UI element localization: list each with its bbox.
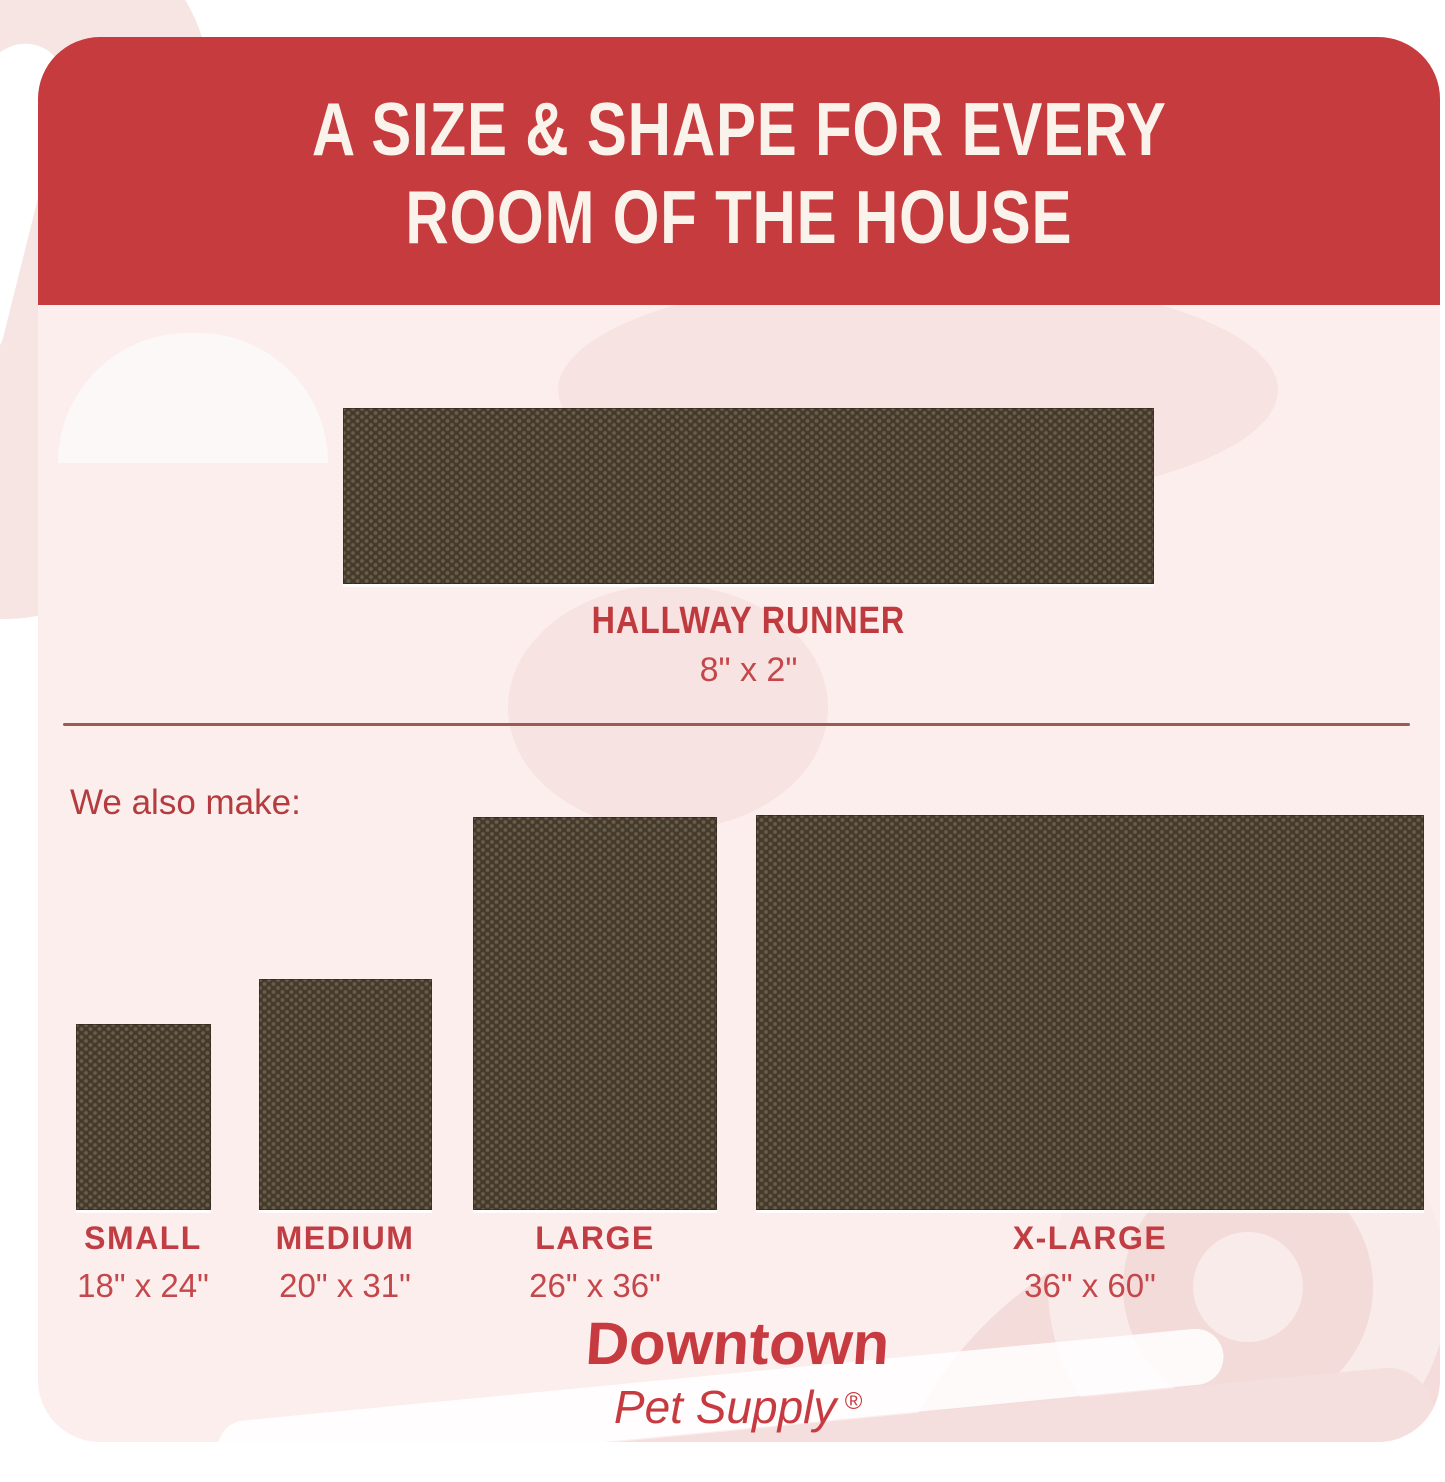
mat-xlarge-name: X-LARGE (910, 1220, 1270, 1257)
brand-logo: Downtown Pet Supply® (438, 1313, 1038, 1432)
intro-text: We also make: (70, 783, 301, 823)
mat-xlarge-size: 36" x 60" (910, 1267, 1270, 1305)
title-line-2: ROOM OF THE HOUSE (406, 173, 1073, 261)
logo-sub-text: Pet Supply® (438, 1377, 1038, 1432)
mat-small-swatch (76, 1024, 211, 1210)
mat-large-label: LARGE 26" x 36" (415, 1220, 775, 1305)
title-line-1: A SIZE & SHAPE FOR EVERY (312, 85, 1167, 173)
hallway-runner-label: HALLWAY RUNNER 8" x 2" (343, 600, 1154, 690)
header-banner: A SIZE & SHAPE FOR EVERY ROOM OF THE HOU… (38, 37, 1440, 305)
registered-mark-icon: ® (844, 1388, 862, 1415)
decor-white-mound (58, 333, 328, 463)
mat-xlarge-label: X-LARGE 36" x 60" (910, 1220, 1270, 1305)
size-guide-card: A SIZE & SHAPE FOR EVERY ROOM OF THE HOU… (38, 37, 1440, 1442)
runner-size: 8" x 2" (343, 651, 1154, 690)
divider-line (63, 723, 1410, 726)
logo-brand-text: Downtown (584, 1313, 892, 1375)
infographic-page: A SIZE & SHAPE FOR EVERY ROOM OF THE HOU… (0, 0, 1445, 1482)
mat-medium-swatch (259, 979, 432, 1210)
mat-large-name: LARGE (415, 1220, 775, 1257)
mat-large-swatch (473, 817, 717, 1210)
mat-large-size: 26" x 36" (415, 1267, 775, 1305)
logo-sub-label: Pet Supply (614, 1381, 836, 1433)
mat-xlarge-swatch (756, 815, 1424, 1210)
hallway-runner-swatch (343, 408, 1154, 584)
runner-name: HALLWAY RUNNER (592, 600, 905, 643)
